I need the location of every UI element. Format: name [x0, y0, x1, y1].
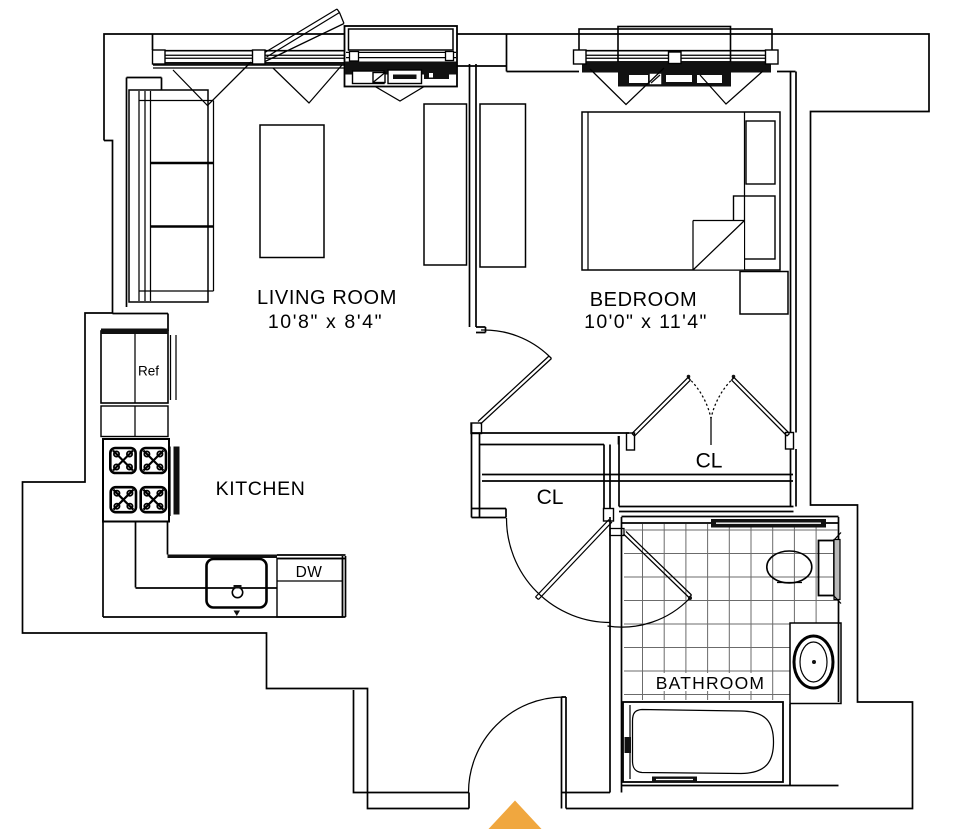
svg-text:CL: CL	[537, 486, 564, 509]
svg-text:10'8" x 8'4": 10'8" x 8'4"	[268, 311, 383, 333]
svg-text:10'0" x 11'4": 10'0" x 11'4"	[584, 311, 708, 333]
svg-text:DW: DW	[296, 564, 323, 581]
svg-text:Ref: Ref	[138, 364, 159, 379]
svg-text:KITCHEN: KITCHEN	[216, 478, 306, 500]
svg-text:BEDROOM: BEDROOM	[590, 289, 698, 311]
svg-text:CL: CL	[696, 450, 723, 473]
svg-text:LIVING ROOM: LIVING ROOM	[257, 287, 397, 309]
svg-text:BATHROOM: BATHROOM	[656, 673, 765, 693]
